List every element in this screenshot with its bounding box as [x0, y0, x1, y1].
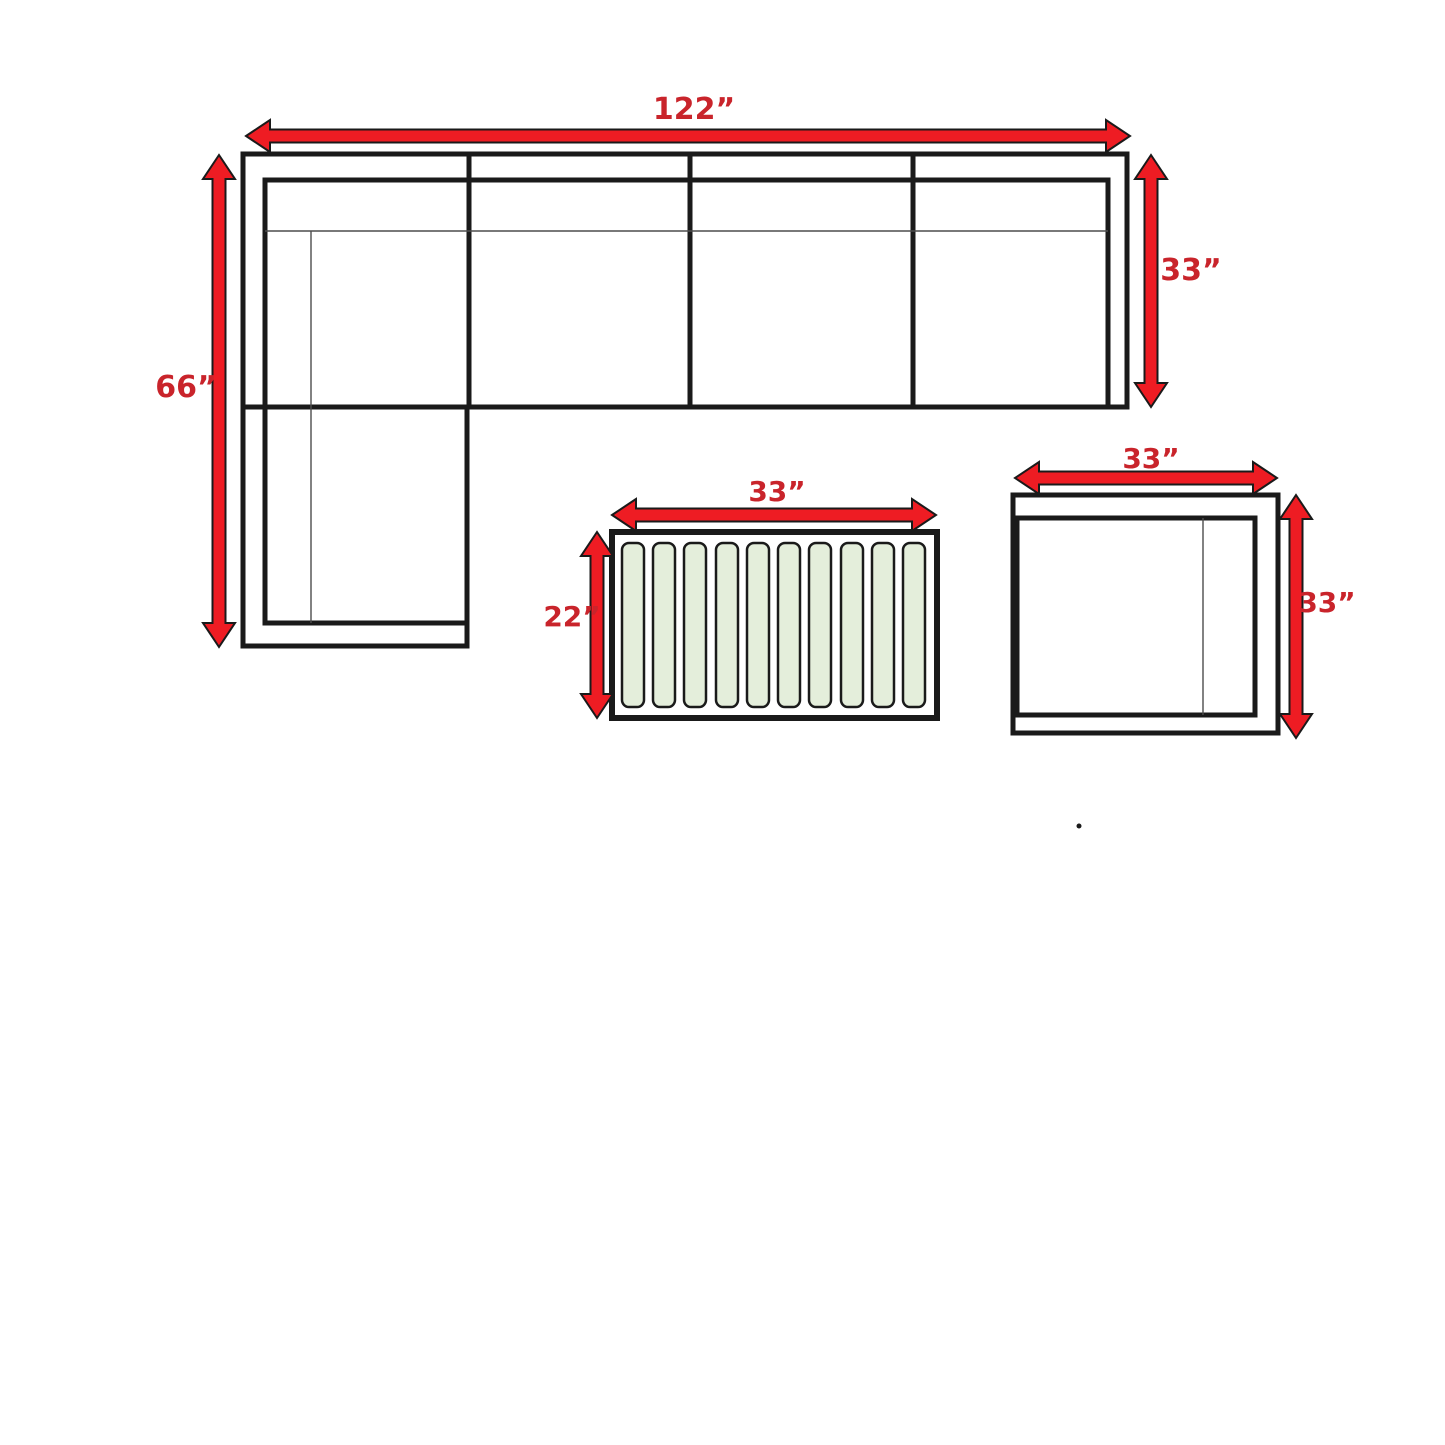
side-table-outline [1013, 495, 1278, 733]
sofa-outer-body [243, 154, 1127, 407]
table-slat [778, 543, 800, 707]
table-slat [809, 543, 831, 707]
sectional-depth-label: 33” [1160, 256, 1221, 286]
side-table-width-label: 33” [1122, 445, 1179, 473]
sofa-chaise-extension [243, 407, 467, 646]
side-table-frame [1013, 495, 1278, 733]
diagram-canvas: 122” 33” 66” 33” 22” 33” 33” [0, 0, 1445, 1445]
table-slat [903, 543, 925, 707]
table-slat [747, 543, 769, 707]
coffee-table-slats [622, 543, 925, 707]
table-slat [716, 543, 738, 707]
dot-mark [1077, 824, 1082, 829]
sectional-width-label: 122” [653, 95, 735, 125]
coffee-table-width-label: 33” [748, 478, 805, 506]
side-table-depth-label: 33” [1298, 589, 1355, 617]
furniture-plan-drawing [0, 0, 1445, 1445]
coffee-table-outline [612, 532, 937, 718]
table-slat [684, 543, 706, 707]
table-slat [653, 543, 675, 707]
table-slat [872, 543, 894, 707]
table-slat [841, 543, 863, 707]
coffee-table-depth-label: 22” [543, 603, 600, 631]
side-table-seat [1017, 518, 1255, 715]
table-slat [622, 543, 644, 707]
sectional-length-label: 66” [155, 373, 216, 403]
